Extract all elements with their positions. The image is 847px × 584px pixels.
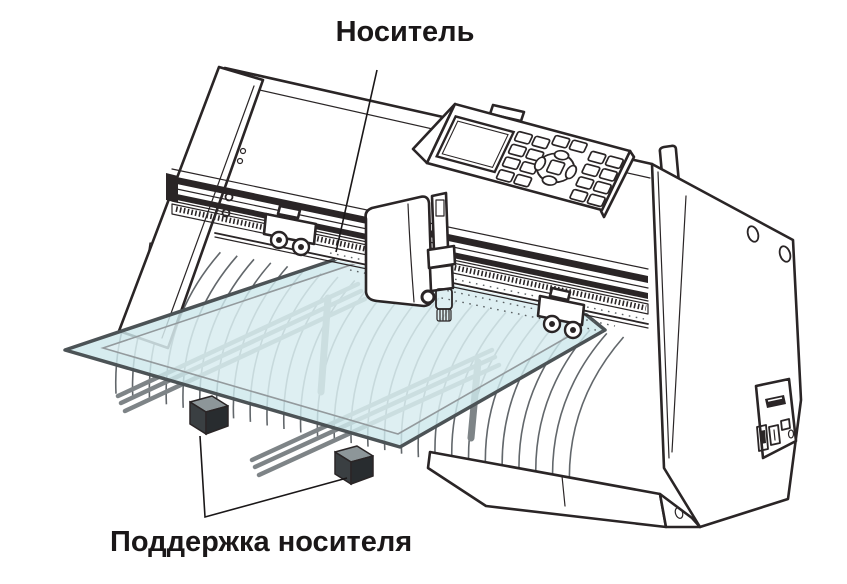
machine-base [428, 452, 700, 527]
platen-rib [569, 337, 623, 489]
label-media: Носитель [336, 16, 475, 48]
plotter-diagram: Носитель Поддержка носителя [0, 0, 847, 584]
carriage-cover [366, 197, 432, 306]
label-media-support: Поддержка носителя [110, 526, 412, 558]
clamp-knob [422, 291, 434, 303]
media-support-leg-rear [335, 446, 373, 484]
tool-clamp [430, 265, 453, 291]
right-side-panel [652, 164, 801, 527]
media-support-leg-front [190, 396, 228, 434]
figure-canvas: Носитель Поддержка носителя [0, 0, 847, 584]
carriage-slider [432, 193, 448, 251]
